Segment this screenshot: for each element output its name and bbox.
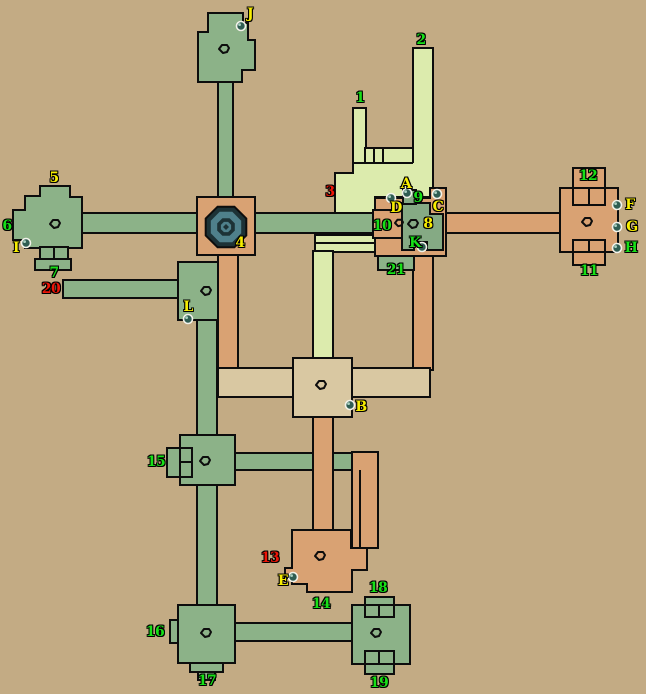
room-15-porch (167, 448, 180, 477)
marker-orb-L (184, 315, 193, 324)
marker-orb-K (418, 243, 427, 252)
room-19-porch (365, 664, 394, 674)
room-12-porch (573, 168, 605, 188)
room-16 (178, 605, 235, 663)
room-16-bump (170, 620, 178, 643)
marker-orb-J (237, 22, 246, 31)
marker-orb-H (613, 244, 622, 253)
corridor-west (82, 213, 197, 233)
marker-orb-G (613, 223, 622, 232)
corridor-L-15 (197, 320, 217, 435)
marker-orb-shine-J (238, 23, 241, 26)
town-map: J2153A9DC12F6108G4KIH2111720LB1513E18141… (0, 0, 646, 694)
marker-orb-shine-K (419, 244, 422, 247)
room-16-step2 (198, 672, 215, 680)
marker-orb-I (22, 239, 31, 248)
marker-orb-shine-H (614, 245, 617, 248)
room-18-porch (365, 597, 394, 605)
room-5-porch (35, 259, 71, 270)
corridor-north (218, 82, 233, 197)
orange-lane-B-13 (313, 417, 333, 532)
complex-sub-room-10 (373, 210, 402, 238)
marker-orb-B (346, 401, 355, 410)
room-11-porch (573, 252, 605, 265)
complex-21-yard (378, 256, 414, 270)
loop-corridor (352, 452, 378, 548)
marker-orb-shine-G (614, 224, 617, 227)
marker-orb-shine-D (388, 195, 391, 198)
marker-orb-shine-F (614, 202, 617, 205)
room-J (198, 13, 255, 82)
marker-orb-shine-I (23, 240, 26, 243)
corridor-east (255, 213, 375, 233)
marker-orb-A (403, 189, 412, 198)
marker-orb-F (613, 201, 622, 210)
pale-stem-to-B (313, 251, 333, 358)
corridor-15-16 (197, 485, 217, 605)
marker-orb-shine-C (434, 191, 437, 194)
marker-orb-D (387, 194, 396, 203)
orange-lane-complex (413, 256, 433, 370)
map-canvas (0, 0, 646, 694)
marker-orb-shine-B (347, 402, 350, 405)
marker-orb-shine-E (290, 574, 293, 577)
marker-orb-shine-A (404, 190, 407, 193)
room-L (178, 262, 218, 320)
corridor-south-4 (218, 255, 238, 368)
marker-orb-E (289, 573, 298, 582)
room-16-step1 (190, 663, 223, 672)
marker-orb-shine-L (185, 316, 188, 319)
corridor-20 (63, 280, 178, 298)
marker-orb-C (433, 190, 442, 199)
corridor-to-12 (446, 213, 560, 233)
corridor-16-east (235, 623, 352, 641)
corridor-15-east (235, 453, 352, 470)
